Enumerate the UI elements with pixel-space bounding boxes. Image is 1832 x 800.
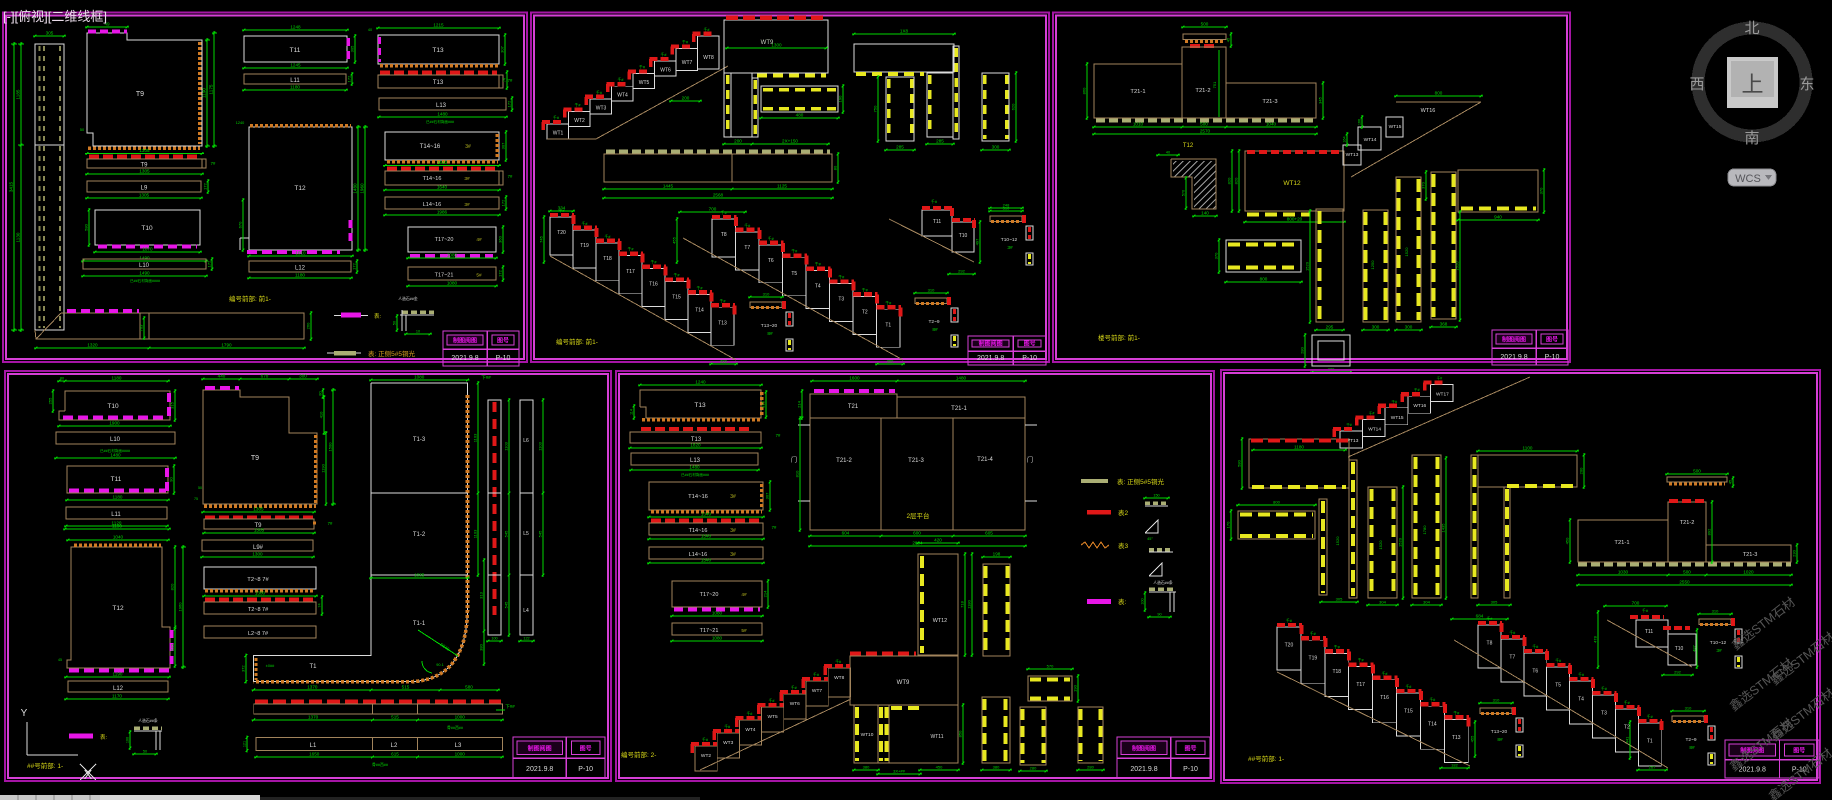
svg-text:千#: 千# — [618, 77, 625, 82]
svg-text:1480: 1480 — [689, 464, 700, 469]
svg-text:605: 605 — [985, 530, 993, 535]
svg-text:304: 304 — [1423, 599, 1430, 604]
svg-text:100: 100 — [125, 737, 129, 743]
svg-text:T5: T5 — [791, 271, 797, 277]
svg-text:3#: 3# — [465, 144, 471, 150]
svg-text:285: 285 — [896, 144, 904, 149]
svg-text:604: 604 — [842, 530, 850, 535]
svg-text:280: 280 — [1299, 346, 1304, 353]
svg-text:40: 40 — [1166, 150, 1170, 154]
svg-text:T11: T11 — [933, 219, 941, 225]
svg-text:1180: 1180 — [295, 272, 305, 277]
svg-text:10: 10 — [416, 329, 420, 333]
svg-text:4#: 4# — [741, 592, 747, 598]
svg-text:2X+150: 2X+150 — [782, 138, 798, 143]
svg-text:T13: T13 — [433, 80, 444, 86]
svg-text:WT4: WT4 — [745, 727, 755, 733]
svg-text:T15: T15 — [1404, 708, 1413, 714]
svg-text:千#: 千# — [1578, 672, 1585, 677]
svg-text:80: 80 — [60, 376, 64, 380]
svg-text:千#: 千# — [769, 698, 776, 703]
svg-text:L2: L2 — [391, 743, 398, 749]
svg-text:515: 515 — [402, 684, 410, 689]
svg-text:2021.9.8: 2021.9.8 — [451, 355, 478, 362]
svg-text:骨##西##: 骨##西## — [372, 762, 389, 767]
svg-text:80: 80 — [318, 391, 322, 395]
svg-text:千#: 千# — [1391, 399, 1397, 404]
svg-text:图号: 图号 — [1793, 747, 1805, 755]
svg-text:1790: 1790 — [221, 342, 232, 347]
svg-text:WT3: WT3 — [723, 740, 733, 746]
svg-text:74: 74 — [317, 603, 321, 607]
svg-text:1900: 1900 — [109, 420, 120, 425]
svg-text:制图阅图: 制图阅图 — [453, 337, 477, 345]
svg-text:1305: 1305 — [254, 527, 265, 532]
svg-text:千#: 千# — [724, 724, 731, 729]
svg-text:300: 300 — [1372, 324, 1380, 329]
svg-text:WT6: WT6 — [660, 68, 671, 74]
svg-text:315: 315 — [760, 400, 765, 407]
svg-text:140: 140 — [1201, 210, 1209, 215]
svg-text:3415: 3415 — [8, 181, 13, 192]
svg-text:292: 292 — [1674, 669, 1681, 674]
svg-text:2568: 2568 — [713, 192, 724, 197]
svg-text:千#: 千# — [1601, 686, 1608, 691]
svg-text:WT3: WT3 — [596, 105, 607, 111]
svg-text:1080: 1080 — [447, 252, 458, 257]
svg-text:T14: T14 — [695, 308, 704, 314]
svg-text:200: 200 — [682, 95, 690, 100]
svg-text:1520: 1520 — [1454, 261, 1459, 271]
svg-text:1480: 1480 — [110, 452, 121, 457]
svg-text:WT6: WT6 — [790, 701, 800, 707]
svg-text:255: 255 — [47, 397, 52, 404]
svg-text:T17~20: T17~20 — [435, 237, 454, 243]
svg-text:南: 南 — [1744, 130, 1759, 147]
svg-text:T17~21: T17~21 — [700, 628, 719, 634]
svg-text:190: 190 — [837, 95, 842, 102]
svg-text:700: 700 — [709, 206, 717, 211]
svg-text:WT9: WT9 — [897, 680, 910, 686]
svg-text:1085: 1085 — [414, 572, 425, 577]
svg-text:千#: 千# — [1642, 608, 1649, 613]
svg-text:455: 455 — [671, 236, 676, 243]
svg-text:已##石材背面####: 已##石材背面#### — [130, 278, 160, 283]
svg-text:制图阅图: 制图阅图 — [1502, 336, 1526, 344]
svg-text:T12: T12 — [1183, 143, 1194, 149]
svg-text:305: 305 — [349, 45, 354, 52]
svg-text:8#: 8# — [1689, 745, 1695, 751]
svg-text:1180: 1180 — [112, 375, 122, 380]
svg-text:370: 370 — [1420, 181, 1425, 188]
svg-text:172: 172 — [202, 182, 207, 189]
svg-text:166: 166 — [1357, 119, 1361, 125]
svg-text:T4: T4 — [815, 284, 821, 290]
svg-text:1170: 1170 — [112, 693, 122, 698]
svg-text:1480: 1480 — [352, 183, 357, 194]
svg-text:2570: 2570 — [1200, 128, 1211, 133]
svg-text:7#: 7# — [776, 433, 781, 438]
svg-text:L11: L11 — [111, 512, 121, 518]
svg-text:1X8: 1X8 — [900, 28, 909, 33]
svg-text:75: 75 — [194, 497, 198, 501]
svg-text:L6: L6 — [523, 438, 529, 444]
svg-text:L5: L5 — [523, 531, 529, 537]
svg-text:L13: L13 — [436, 103, 447, 109]
svg-text:北: 北 — [1744, 20, 1759, 37]
svg-text:千#: 千# — [931, 199, 938, 204]
svg-text:380: 380 — [478, 643, 483, 650]
svg-text:T17~20: T17~20 — [700, 592, 719, 598]
svg-text:千#: 千# — [1369, 410, 1375, 415]
svg-text:T5: T5 — [1555, 682, 1561, 688]
svg-text:T21-4: T21-4 — [977, 457, 993, 463]
svg-text:L14~16: L14~16 — [423, 202, 442, 208]
svg-text:8#: 8# — [932, 327, 938, 333]
svg-text:1100: 1100 — [1523, 445, 1533, 450]
svg-text:T11: T11 — [290, 47, 301, 54]
svg-text:172: 172 — [346, 75, 351, 82]
svg-text:620: 620 — [169, 643, 174, 650]
svg-text:WT7: WT7 — [682, 60, 693, 66]
svg-text:1305: 1305 — [139, 192, 150, 197]
svg-text:315: 315 — [169, 401, 174, 408]
svg-text:1000: 1000 — [455, 751, 466, 756]
svg-text:骨##西##: 骨##西## — [447, 725, 464, 730]
svg-text:楼号前部: 前1-: 楼号前部: 前1- — [1098, 333, 1140, 342]
svg-text:WT14: WT14 — [1368, 426, 1381, 432]
svg-text:T11: T11 — [1645, 629, 1653, 635]
svg-text:370: 370 — [1538, 187, 1543, 194]
svg-text:T1: T1 — [1647, 738, 1653, 744]
svg-text:1125: 1125 — [777, 183, 787, 188]
svg-text:T17~21: T17~21 — [435, 273, 454, 279]
svg-text:570: 570 — [1047, 663, 1054, 668]
svg-text:千#: 千# — [661, 52, 668, 57]
svg-text:人造石##条: 人造石##条 — [138, 718, 158, 723]
svg-text:1340: 1340 — [701, 557, 712, 562]
svg-text:千#: 千# — [1414, 387, 1420, 392]
svg-text:千#: 千# — [744, 223, 751, 228]
svg-text:T20: T20 — [1285, 642, 1294, 648]
svg-text:制图阅图: 制图阅图 — [1132, 745, 1156, 753]
svg-text:2021.9.8: 2021.9.8 — [977, 355, 1004, 362]
svg-text:300: 300 — [720, 358, 727, 363]
svg-text:千#: 千# — [1453, 710, 1460, 715]
svg-text:±0##: ±0## — [266, 664, 275, 668]
svg-text:千#: 千# — [768, 236, 775, 241]
svg-text:P-10: P-10 — [1022, 355, 1037, 362]
svg-text:892: 892 — [1706, 528, 1711, 535]
svg-text:图号: 图号 — [580, 745, 592, 753]
svg-text:T2: T2 — [1624, 724, 1630, 730]
svg-text:WT16: WT16 — [1421, 108, 1436, 114]
svg-text:580: 580 — [1236, 459, 1241, 466]
svg-text:T21-2: T21-2 — [1680, 520, 1695, 526]
svg-text:编号前部: 2-: 编号前部: 2- — [621, 750, 656, 759]
svg-text:T16: T16 — [649, 282, 658, 288]
svg-text:L12: L12 — [295, 266, 306, 272]
svg-text:500: 500 — [1201, 21, 1209, 26]
svg-text:200: 200 — [734, 138, 742, 143]
svg-text:3#: 3# — [730, 528, 736, 534]
svg-text:4#: 4# — [476, 237, 482, 243]
svg-text:545: 545 — [503, 530, 508, 537]
svg-text:1180: 1180 — [966, 599, 971, 608]
svg-text:172: 172 — [500, 199, 505, 206]
svg-text:千#: 千# — [1334, 644, 1341, 649]
svg-text:T21-1: T21-1 — [1614, 540, 1629, 546]
svg-text:1080: 1080 — [712, 635, 723, 640]
svg-text:615: 615 — [391, 751, 399, 756]
svg-text:304: 304 — [1379, 599, 1386, 604]
svg-text:千#: 千# — [1346, 422, 1352, 427]
svg-text:T21-1: T21-1 — [951, 406, 967, 412]
svg-text:280: 280 — [1087, 764, 1094, 769]
svg-text:1340: 1340 — [701, 511, 712, 516]
svg-text:T12: T12 — [112, 605, 124, 612]
svg-text:T14~16: T14~16 — [423, 176, 442, 182]
svg-text:3#: 3# — [1716, 648, 1722, 654]
svg-text:100: 100 — [491, 636, 497, 640]
svg-text:1520: 1520 — [1404, 247, 1409, 257]
svg-text:3#: 3# — [730, 494, 736, 500]
svg-text:T3: T3 — [1601, 710, 1607, 716]
svg-text:1480: 1480 — [437, 111, 448, 116]
svg-text:千#: 千# — [746, 711, 753, 716]
svg-text:1320: 1320 — [87, 342, 98, 347]
svg-text:千#: 千# — [1286, 618, 1293, 623]
svg-text:1340: 1340 — [701, 533, 712, 538]
svg-text:千#: 千# — [674, 273, 681, 278]
svg-text:1080: 1080 — [414, 374, 425, 379]
svg-text:WT17: WT17 — [1436, 392, 1449, 398]
svg-text:T12: T12 — [294, 185, 306, 192]
svg-text:L9#: L9# — [253, 545, 264, 551]
svg-text:1490: 1490 — [139, 255, 150, 260]
svg-text:450: 450 — [936, 764, 943, 769]
svg-text:1370: 1370 — [307, 684, 318, 689]
svg-text:198: 198 — [993, 551, 1001, 556]
svg-text:上: 上 — [1741, 72, 1763, 97]
svg-text:东: 东 — [1799, 76, 1814, 93]
svg-text:T13~20: T13~20 — [1491, 729, 1508, 735]
svg-text:WT12: WT12 — [933, 618, 947, 624]
svg-text:WT2: WT2 — [574, 118, 585, 124]
svg-text:440: 440 — [218, 373, 226, 378]
svg-text:1103: 1103 — [472, 529, 477, 538]
svg-text:千#: 千# — [704, 27, 711, 32]
svg-text:门: 门 — [791, 456, 797, 464]
svg-text:千#: 千# — [1532, 644, 1539, 649]
svg-text:WT2: WT2 — [701, 753, 711, 759]
svg-text:1960: 1960 — [359, 183, 364, 194]
svg-text:570: 570 — [1181, 190, 1185, 196]
svg-text:305: 305 — [1491, 599, 1498, 604]
svg-text:1248: 1248 — [290, 24, 301, 29]
svg-text:T11: T11 — [111, 476, 122, 483]
svg-text:700: 700 — [1632, 600, 1640, 605]
svg-text:WT11: WT11 — [931, 734, 944, 740]
svg-text:T10: T10 — [959, 233, 968, 239]
svg-text:860: 860 — [1081, 87, 1086, 94]
svg-text:800+20: 800+20 — [1287, 216, 1303, 221]
svg-text:3X+##: 3X+## — [893, 768, 905, 773]
svg-text:850: 850 — [957, 730, 962, 737]
svg-text:T15: T15 — [672, 295, 681, 301]
svg-text:T13: T13 — [1452, 735, 1461, 741]
svg-text:编号前部: 前1-: 编号前部: 前1- — [556, 337, 598, 346]
svg-text:295: 295 — [1326, 324, 1334, 329]
svg-text:WT12: WT12 — [1283, 180, 1301, 187]
svg-text:T21-3: T21-3 — [1262, 99, 1277, 105]
svg-text:1305: 1305 — [139, 168, 150, 173]
svg-text:图号: 图号 — [1024, 340, 1036, 348]
svg-text:1020: 1020 — [1743, 569, 1754, 574]
svg-text:L10: L10 — [139, 263, 150, 269]
svg-text:182: 182 — [1451, 762, 1458, 767]
svg-text:2550: 2550 — [1679, 579, 1690, 584]
svg-text:WT15: WT15 — [1391, 415, 1404, 421]
svg-text:1480: 1480 — [956, 375, 967, 380]
svg-text:372: 372 — [240, 665, 245, 672]
svg-text:703: 703 — [138, 324, 143, 331]
svg-text:千#: 千# — [791, 685, 798, 690]
svg-text:307: 307 — [764, 492, 769, 499]
svg-text:千#: 千# — [682, 39, 689, 44]
svg-text:345: 345 — [1317, 96, 1322, 103]
svg-text:1030: 1030 — [1618, 569, 1629, 574]
svg-text:172: 172 — [206, 260, 211, 267]
svg-text:3#: 3# — [1007, 245, 1013, 251]
svg-text:545: 545 — [537, 530, 542, 537]
svg-text:图号: 图号 — [1546, 336, 1558, 344]
svg-text:L11: L11 — [290, 78, 300, 84]
svg-text:90: 90 — [1157, 612, 1161, 616]
svg-text:1520: 1520 — [1304, 261, 1309, 271]
svg-text:800: 800 — [1260, 276, 1268, 281]
svg-text:T14: T14 — [1428, 722, 1437, 728]
svg-text:WT5: WT5 — [639, 80, 650, 86]
svg-text:制图阅图: 制图阅图 — [979, 340, 1003, 348]
svg-text:T1: T1 — [885, 322, 891, 328]
svg-text:7#: 7# — [508, 78, 513, 83]
svg-text:##号前部: 1-: ##号前部: 1- — [27, 761, 63, 770]
svg-text:T21: T21 — [848, 404, 859, 410]
svg-text:1040: 1040 — [1266, 121, 1277, 126]
svg-text:WT15: WT15 — [1389, 124, 1402, 130]
svg-text:千#: 千# — [835, 659, 842, 664]
svg-text:千#: 千# — [1310, 631, 1317, 636]
svg-text:3#: 3# — [464, 176, 470, 182]
svg-text:2021.9.8: 2021.9.8 — [1500, 354, 1527, 361]
svg-text:292: 292 — [958, 268, 965, 273]
svg-text:T2~9: T2~9 — [1685, 737, 1696, 743]
svg-text:1650: 1650 — [309, 751, 320, 756]
svg-text:1103: 1103 — [472, 433, 477, 442]
svg-text:1600: 1600 — [849, 375, 860, 380]
svg-text:T2~9: T2~9 — [928, 319, 939, 325]
svg-text:1520: 1520 — [1378, 540, 1383, 550]
svg-text:L1: L1 — [310, 743, 317, 749]
svg-text:441: 441 — [1624, 736, 1629, 743]
svg-text:编号前部: 前1-: 编号前部: 前1- — [229, 294, 271, 303]
svg-text:450: 450 — [1564, 537, 1569, 544]
svg-text:170: 170 — [1225, 521, 1230, 528]
svg-text:T21-1: T21-1 — [1130, 89, 1145, 95]
svg-text:310: 310 — [1493, 697, 1500, 702]
svg-text:410: 410 — [318, 411, 323, 418]
svg-text:305: 305 — [46, 30, 54, 35]
svg-text:1000: 1000 — [455, 714, 466, 719]
svg-text:T9: T9 — [251, 455, 259, 462]
svg-text:820: 820 — [1226, 177, 1231, 184]
svg-text:表2: 表2 — [1118, 508, 1129, 517]
svg-text:T18: T18 — [603, 256, 612, 262]
svg-text:620: 620 — [1010, 103, 1015, 110]
svg-text:T2~8 7#: T2~8 7# — [247, 577, 269, 583]
svg-text:5#: 5# — [476, 273, 482, 279]
svg-text:T4: T4 — [1578, 696, 1584, 702]
svg-text:45: 45 — [1225, 37, 1230, 42]
svg-text:T14~16: T14~16 — [420, 144, 441, 150]
svg-text:214: 214 — [762, 590, 767, 597]
svg-text:WT4: WT4 — [617, 93, 628, 99]
svg-text:Y: Y — [21, 708, 28, 719]
svg-text:670: 670 — [237, 221, 242, 228]
svg-text:380: 380 — [863, 764, 870, 769]
svg-text:1240: 1240 — [236, 121, 244, 125]
svg-text:千#: 千# — [651, 260, 658, 265]
svg-text:1040: 1040 — [113, 534, 124, 539]
svg-text:[-][俯视][二维线框]: [-][俯视][二维线框] — [3, 9, 107, 24]
svg-text:172: 172 — [351, 262, 356, 269]
svg-text:千#: 千# — [582, 221, 589, 226]
svg-text:WT14: WT14 — [1364, 137, 1377, 143]
svg-text:T17: T17 — [1356, 682, 1365, 688]
svg-text:千#: 千# — [1624, 700, 1631, 705]
svg-text:T7: T7 — [744, 245, 750, 251]
svg-text:1520: 1520 — [1397, 537, 1402, 547]
svg-text:300: 300 — [992, 144, 1000, 149]
svg-text:人造石##金: 人造石##金 — [398, 296, 418, 301]
svg-text:515: 515 — [391, 714, 399, 719]
svg-text:1080: 1080 — [712, 610, 723, 615]
svg-text:1185: 1185 — [15, 89, 20, 99]
svg-text:1300: 1300 — [255, 590, 266, 595]
svg-text:P-10: P-10 — [1183, 766, 1198, 773]
svg-text:1180: 1180 — [113, 494, 123, 499]
svg-text:370: 370 — [1213, 252, 1218, 259]
svg-text:1435: 1435 — [1440, 523, 1445, 533]
svg-text:T18: T18 — [1332, 669, 1341, 675]
svg-text:T14~16: T14~16 — [688, 494, 708, 500]
svg-text:L9: L9 — [141, 186, 148, 192]
svg-text:230: 230 — [1791, 549, 1796, 556]
svg-text:260: 260 — [305, 322, 310, 329]
svg-text:WT16: WT16 — [1413, 403, 1426, 409]
svg-text:820: 820 — [1233, 177, 1238, 184]
svg-text:1180: 1180 — [1294, 444, 1304, 449]
svg-text:WT5: WT5 — [768, 714, 778, 720]
svg-text:214: 214 — [796, 400, 801, 407]
svg-text:334: 334 — [558, 205, 566, 210]
svg-text:1820: 1820 — [690, 442, 701, 447]
svg-text:121: 121 — [242, 741, 246, 747]
svg-text:7#: 7# — [508, 174, 513, 179]
svg-text:1300: 1300 — [252, 551, 263, 556]
svg-text:1190: 1190 — [112, 523, 122, 528]
